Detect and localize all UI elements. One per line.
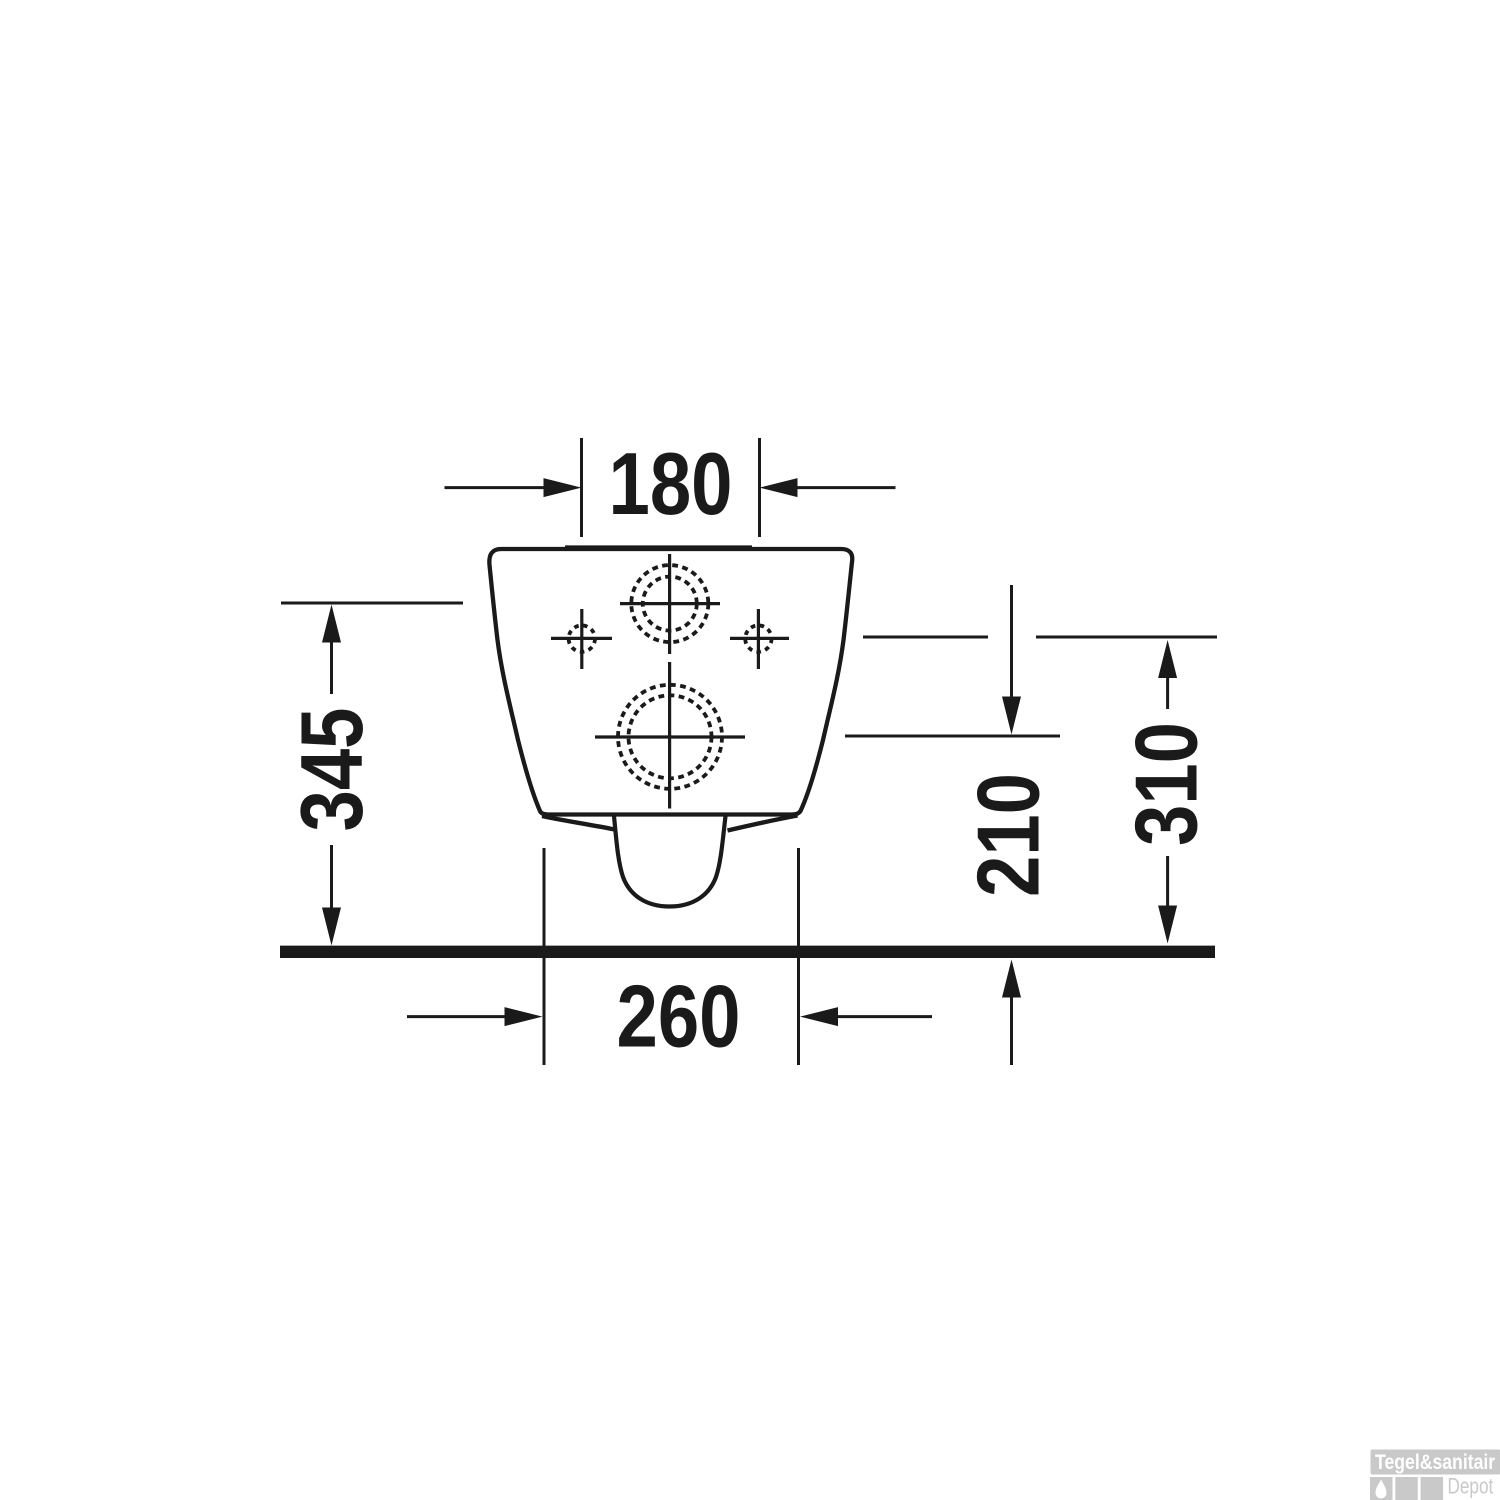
svg-text:310: 310 [1117, 722, 1216, 846]
svg-text:180: 180 [608, 435, 732, 534]
svg-text:345: 345 [283, 707, 382, 831]
svg-text:210: 210 [959, 773, 1058, 897]
svg-text:Depot: Depot [1448, 1475, 1494, 1500]
svg-text:Tegel&sanitair: Tegel&sanitair [1375, 1450, 1496, 1474]
svg-text:260: 260 [616, 967, 740, 1066]
